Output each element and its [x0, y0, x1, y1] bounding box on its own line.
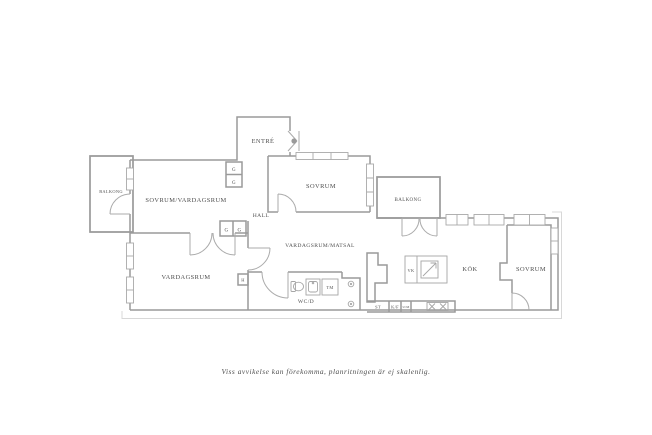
entrance-door-knob-icon	[291, 138, 296, 143]
stove-burners-icon	[429, 304, 446, 310]
wall-perimeter	[130, 117, 558, 310]
vk-diagonal-arrow-icon	[423, 263, 436, 276]
sink-icon	[309, 282, 318, 293]
room-label-sovrum-right: SOVRUM	[516, 266, 546, 273]
facade-line	[122, 212, 562, 319]
sink-faucet-icon	[312, 282, 314, 284]
room-label-vardagsrum: VARDAGSRUM	[161, 274, 210, 281]
closet-label-g: G	[225, 229, 229, 234]
vardagsrum-door-arc	[248, 248, 270, 270]
closet-label-g: G	[238, 229, 242, 234]
room-label-sovrum-mid: SOVRUM	[306, 183, 336, 190]
sovrum-right-door-arc	[512, 293, 529, 310]
fixture-label-vk: VK	[408, 268, 415, 273]
floor-plan-page: BALKONG SOVRUM/VARDAGSRUM ENTRÉ G G SOVR…	[0, 0, 652, 435]
shower-icon	[348, 281, 354, 287]
toilet-icon	[294, 282, 304, 291]
balconies	[90, 156, 440, 232]
fixture-label-kf: K/F	[391, 305, 399, 310]
room-label-kok: KÖK	[462, 266, 477, 273]
fixture-label-st: ST	[375, 305, 381, 310]
balcony-left-door-arc	[110, 194, 130, 214]
closet-label-g: G	[232, 181, 236, 186]
shower-icon	[350, 283, 351, 284]
wall-kitchen-shaft	[367, 253, 387, 302]
room-label-vardagsrum-matsal: VARDAGSRUM/MATSAL	[285, 243, 355, 249]
disclaimer-caption: Viss avvikelse kan förekomma, planritnin…	[221, 367, 430, 376]
room-label-entre: ENTRÉ	[252, 137, 275, 145]
floor-plan-drawing: BALKONG SOVRUM/VARDAGSRUM ENTRÉ G G SOVR…	[0, 0, 652, 435]
window	[367, 164, 374, 206]
room-label-hall: HALL	[253, 213, 270, 219]
facade-outline	[122, 212, 562, 319]
closet-label-g: G	[232, 168, 236, 173]
closet-label-h: H	[241, 278, 245, 283]
room-label-sovrum-vardagsrum: SOVRUM/VARDAGSRUM	[145, 197, 226, 204]
shower-icon	[350, 303, 351, 304]
room-labels: BALKONG SOVRUM/VARDAGSRUM ENTRÉ G G SOVR…	[99, 137, 546, 376]
fixture-label-um: U/M	[402, 305, 409, 309]
shower-icon	[348, 301, 354, 307]
wall-interior-left	[130, 221, 342, 310]
room-label-balkong-left: BALKONG	[99, 189, 123, 194]
room-label-balkong-right: BALKONG	[395, 198, 422, 203]
fixture-label-tm: TM	[326, 285, 333, 290]
french-doors-balcony-right	[402, 218, 437, 236]
window	[296, 153, 348, 160]
sovrum-mid-door-arc	[278, 194, 296, 212]
wc-door-arc	[262, 272, 288, 298]
room-label-wcd: WC/D	[298, 299, 314, 305]
